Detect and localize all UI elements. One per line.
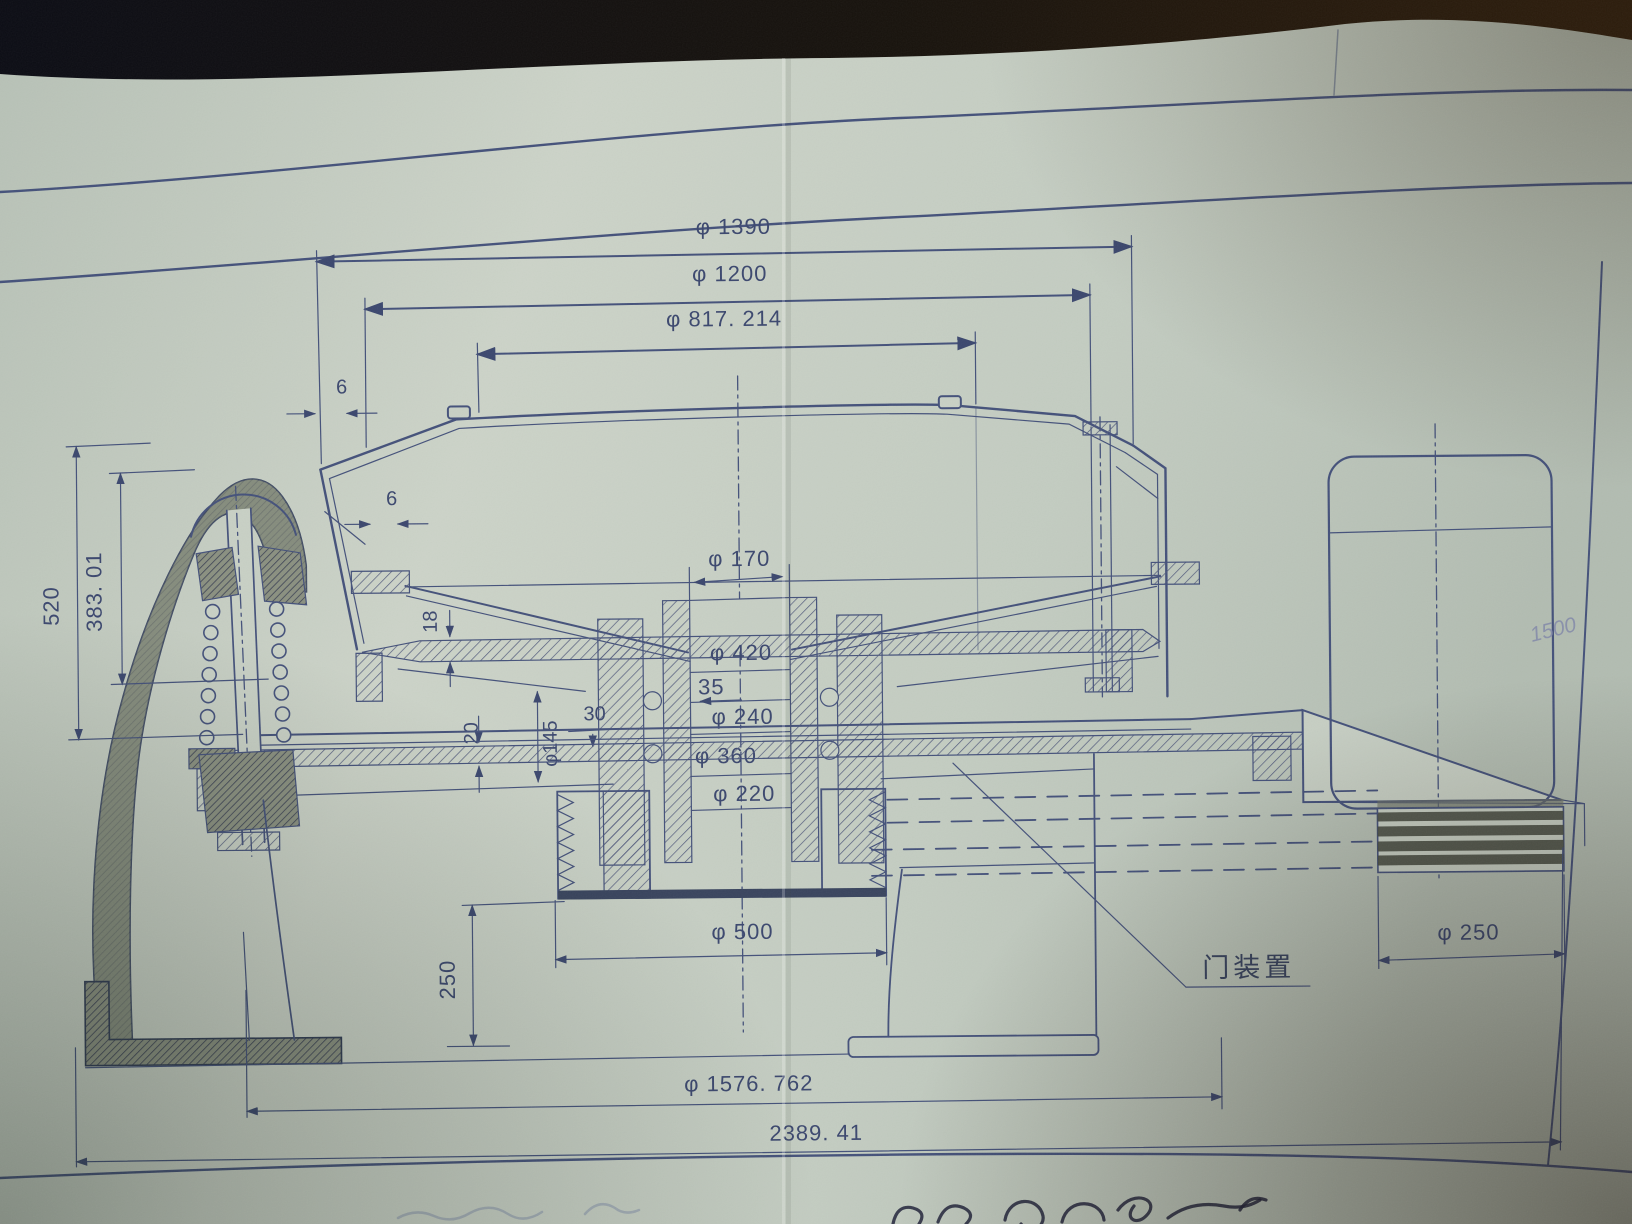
blueprint-photo: φ 1390 φ 1200 φ 817. 214 6 6 bbox=[0, 0, 1632, 1224]
photo-artifacts bbox=[0, 0, 1632, 1224]
photo-of-engineering-drawing: φ 1390 φ 1200 φ 817. 214 6 6 bbox=[0, 0, 1632, 1224]
